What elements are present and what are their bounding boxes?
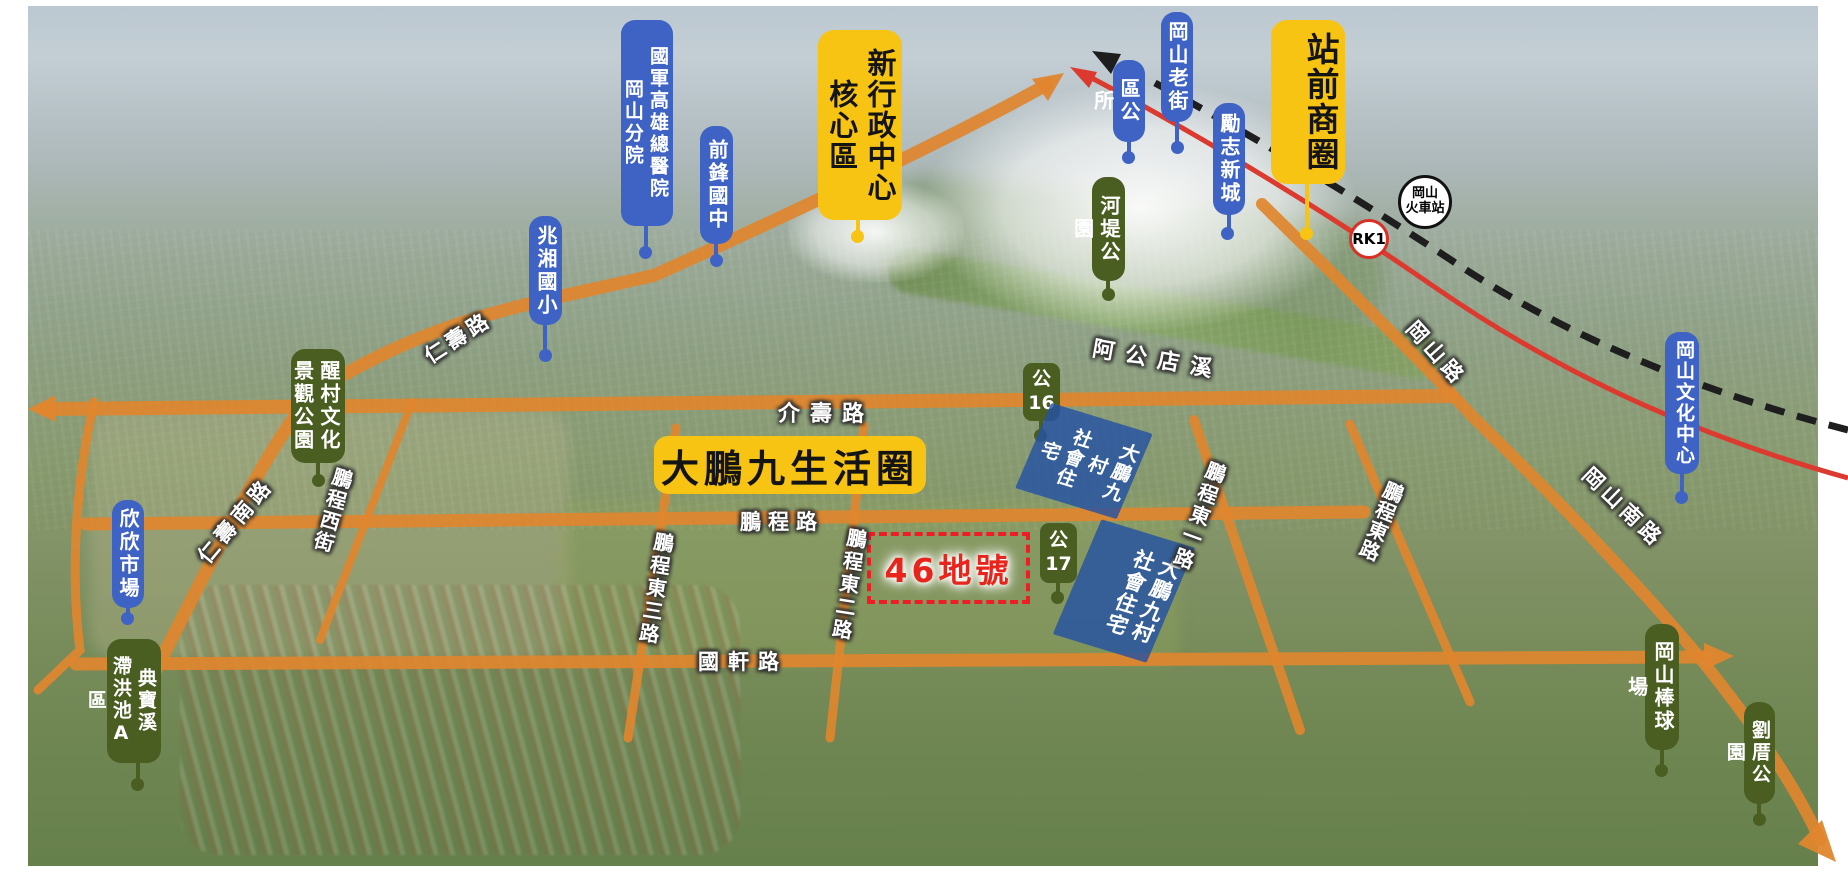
old-street-pointer-dot [1171,141,1184,154]
riverside-park-pointer-dot [1102,288,1115,301]
label-dianbao-line2: 滯洪池A區 [83,647,133,755]
culture-center-pointer-line [1680,474,1684,492]
park16-line1: 公 [1032,368,1051,392]
label-new-admin-center: 新行政中心 核心區 [818,30,902,220]
label-station-front-text: 站前商圈 [1298,28,1342,176]
rk1-text: RK1 [1352,230,1386,248]
label-park17: 公 17 [1040,523,1077,583]
label-culture-center-text: 岡山文化中心 [1671,340,1696,466]
label-zhaoxiang-elementary: 兆湘國小 [529,216,562,325]
label-liucuo-text: 劉厝公園 [1722,710,1772,796]
liucuo-pointer-dot [1753,813,1766,826]
label-culture-center: 岡山文化中心 [1665,332,1699,474]
park17-line2: 17 [1045,553,1071,577]
label-gangshan-old-street: 岡山老街 [1161,12,1193,122]
label-baseball-text: 岡山棒球場 [1623,632,1676,742]
label-dianbao-line1: 典寶溪 [133,647,158,755]
dianbao-pointer-dot [131,778,144,791]
label-liucuo-park: 劉厝公園 [1744,702,1775,804]
road-label-jieshou: 介壽路 [778,396,874,428]
culture-center-pointer-dot [1675,491,1688,504]
xinxin-pointer-dot [121,612,134,625]
site-46-text: 46地號 [885,544,1013,592]
label-baseball-stadium: 岡山棒球場 [1645,624,1679,750]
label-district-office: 區公所 [1113,60,1145,142]
label-xinxin-market: 欣欣市場 [112,500,144,608]
old-street-pointer-line [1175,122,1179,142]
xingcun-pointer-dot [312,474,325,487]
train-station-line1: 岡山 [1412,187,1438,202]
zhaoxiang-pointer-dot [539,349,552,362]
district-office-pointer-dot [1122,151,1135,164]
label-hospital: 國軍高雄總醫院 岡山分院 [621,20,673,226]
label-new-admin-line2: 核心區 [822,38,860,212]
station-front-pointer-line [1305,184,1309,228]
qianfeng-pointer-dot [710,254,723,267]
label-xingcun-line1: 醒村文化 [316,357,342,455]
label-hospital-line2: 岡山分院 [620,28,645,218]
aerial-map: 國軍高雄總醫院 岡山分院 前鋒國中 兆湘國小 區公所 岡山老街 勵志新城 新行政… [0,0,1848,886]
label-xingcun-culture-park: 醒村文化 景觀公園 [291,349,345,463]
hospital-pointer-line [644,226,648,248]
station-front-pointer-dot [1300,227,1313,240]
label-old-street-text: 岡山老街 [1164,20,1190,114]
train-station-line2: 火車站 [1405,202,1444,217]
park17-pointer-dot [1051,591,1064,604]
label-riverside-park: 河堤公園 [1092,177,1125,281]
label-lizhi-new-town: 勵志新城 [1213,103,1245,215]
label-district-office-text: 區公所 [1089,68,1142,134]
lizhi-pointer-dot [1221,227,1234,240]
baseball-pointer-dot [1655,764,1668,777]
label-riverside-park-text: 河堤公園 [1069,185,1122,273]
label-dapeng-life-circle: 大鵬九生活圈 [654,436,926,494]
label-hospital-line1: 國軍高雄總醫院 [645,28,670,218]
label-qianfeng-junior-high: 前鋒國中 [700,126,733,244]
park17-line1: 公 [1049,529,1068,553]
label-xinxin-text: 欣欣市場 [115,508,141,600]
hospital-pointer-dot [639,246,652,259]
label-qianfeng-text: 前鋒國中 [704,134,730,236]
new-admin-pointer-dot [851,230,864,243]
site-46-boundary: 46地號 [867,532,1030,604]
road-label-pengcheng: 鵬程路 [740,506,824,536]
rk1-station-badge: RK1 [1349,219,1389,259]
label-xingcun-line2: 景觀公園 [289,357,315,455]
train-station-badge: 岡山 火車站 [1398,175,1452,229]
label-new-admin-line1: 新行政中心 [861,38,899,212]
zhaoxiang-pointer-line [543,325,547,351]
label-zhaoxiang-text: 兆湘國小 [533,224,559,317]
dapeng-life-circle-text: 大鵬九生活圈 [661,438,919,493]
label-lizhi-text: 勵志新城 [1216,111,1242,207]
road-label-guoxuan: 國軒路 [698,646,788,676]
label-dianbao-detention-basin: 典寶溪 滯洪池A區 [107,639,161,763]
label-station-front-district: 站前商圈 [1271,20,1345,184]
